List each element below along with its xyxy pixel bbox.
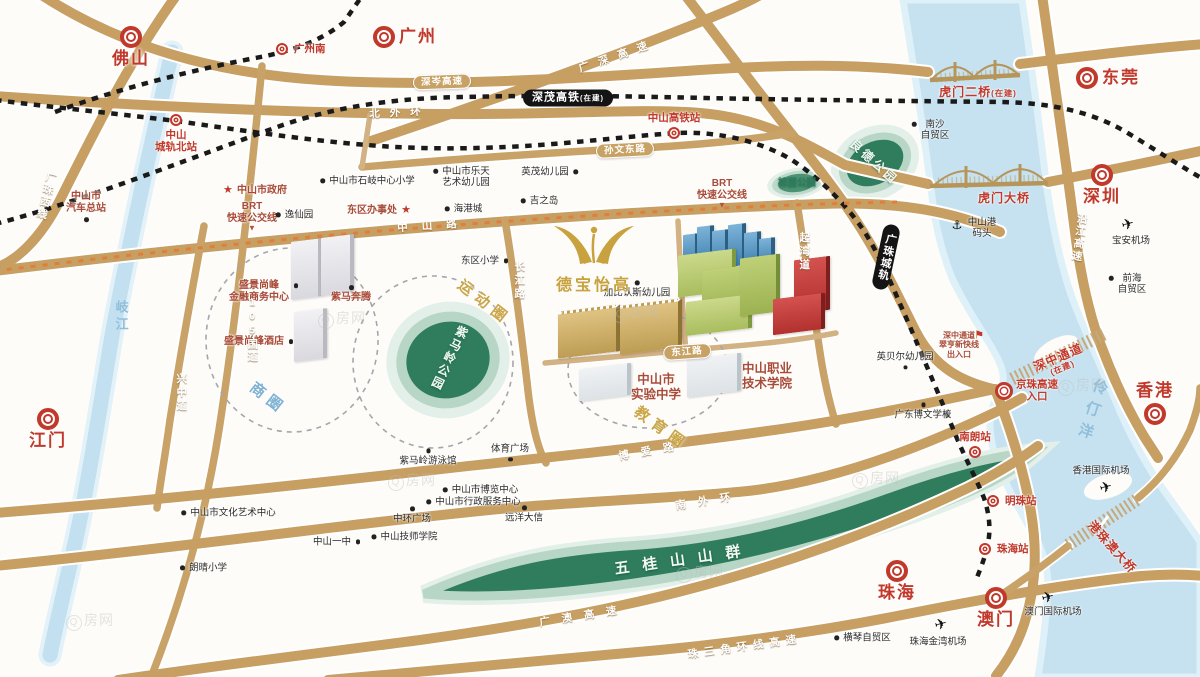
poi-polytechnic: 中山职业技术学院 xyxy=(742,361,792,391)
poi-macau-airport: 澳门国际机场 xyxy=(1024,606,1081,617)
water-lingdingyang: 伶仃洋 xyxy=(1072,376,1110,447)
road-guangshen-expwy: 广深高速 xyxy=(577,37,659,75)
road-nanwaihuan: 南外环 xyxy=(675,490,744,513)
road-guang-ao-expwy: 广澳高速 xyxy=(539,603,630,629)
zone-business: 商圈 xyxy=(246,379,290,419)
poi-city-hall: 中山市政府★ xyxy=(237,185,287,197)
plane-icon-baoan: ✈ xyxy=(1120,215,1137,235)
water-qijiang: 岐江 xyxy=(113,300,128,334)
poi-shengjing-center: 盛景尚峰金融商务中心 xyxy=(229,280,289,304)
watermark: Q房网 xyxy=(852,468,900,489)
wuguishan-mountains: 五桂山山群 xyxy=(613,541,754,578)
poi-shiqi-primary: 中山市石岐中心小学 xyxy=(329,175,415,186)
poi-langqing-primary: 朗晴小学 xyxy=(189,562,227,573)
poi-admin-service-center: 中山市行政服务中心 xyxy=(435,496,521,507)
watermark: Q房网 xyxy=(66,610,114,631)
plane-icon-macau: ✈ xyxy=(1040,588,1057,608)
bridge-shenzhong-label: 深中通道(在建) xyxy=(1031,341,1088,383)
poi-experimental-school: 中山市实验中学 xyxy=(631,372,681,402)
project-name: 德宝怡高 xyxy=(548,271,640,295)
park-zongyin: 棕茵公园 xyxy=(778,177,816,188)
watermark: Q房网 xyxy=(388,470,436,491)
poi-expo-center: 中山市博览中心 xyxy=(452,484,519,495)
poi-no1-middle-school: 中山一中 xyxy=(313,536,351,547)
flag-icon-shenzhong-entrance: ⚑ xyxy=(974,330,984,343)
poi-yuanyang-daxin: 远洋大信 xyxy=(505,512,543,523)
plane-icon-jinwan: ✈ xyxy=(933,615,950,635)
road-g105: 105国道 xyxy=(246,297,258,364)
road-beiwaihuan: 北外环 xyxy=(369,105,431,121)
labels-layer: 佛山广州东莞深圳香港江门珠海澳门广州南中山城轨北站中山高铁站南朗站明珠站珠海站京… xyxy=(0,0,1200,677)
road-changjianglu: 长江路 xyxy=(513,261,525,302)
brt-label-west: BRT快速公交线 xyxy=(227,201,277,225)
poi-zhonghuan-plaza: 中环广场 xyxy=(393,513,431,524)
road-zhongshanlu: 中山路 xyxy=(397,217,471,234)
poi-technician-college: 中山技师学院 xyxy=(380,531,437,542)
poi-bowen-school: 广东博文学校 xyxy=(894,409,951,420)
bridge-humen2-label: 虎门二桥(在建) xyxy=(939,85,1017,99)
poi-bus-terminal: 中山市汽车总站 xyxy=(66,191,106,215)
poi-hengqin-ftz: 横琴自贸区 xyxy=(843,632,891,643)
zone-sports: 运动圈 xyxy=(454,277,515,330)
poi-dongqu-primary: 东区小学 xyxy=(461,255,499,266)
road-guangzhu-west-line: 广珠西线 xyxy=(34,170,58,222)
park-liangde: 良德公园 xyxy=(847,137,901,188)
poi-qianhai-ftz: 前海自贸区 xyxy=(1118,273,1147,295)
poi-hk-airport: 香港国际机场 xyxy=(1072,465,1129,476)
road-qiwandao: 起湾道 xyxy=(798,232,810,273)
poi-sports-plaza: 体育广场 xyxy=(491,443,529,454)
poi-zimaling-natatorium: 紫马岭游泳馆 xyxy=(399,455,456,466)
poi-zima-benteng: 紫马奔腾 xyxy=(331,292,371,304)
road-shencen-expwy: 深岑高速 xyxy=(413,73,472,90)
bridge-hzmb-label: 港珠澳大桥 xyxy=(1085,518,1139,576)
road-dongjianglu: 东江路 xyxy=(663,343,711,361)
brt-label-east: BRT快速公交线 xyxy=(697,178,747,202)
poi-culture-art-center: 中山市文化艺术中心 xyxy=(190,507,276,518)
poi-zhongshan-port: 中山港码头 xyxy=(968,217,997,239)
road-sunwen-east: 孙文东路 xyxy=(596,141,655,159)
poi-yixian-garden: 逸仙园 xyxy=(285,209,314,220)
poi-nansha-ftz: 南沙自贸区 xyxy=(921,119,950,141)
plane-icon-hk: ✈ xyxy=(1098,478,1115,498)
poi-yingbeier-kindergarten: 英贝尔幼儿园 xyxy=(876,351,933,362)
shenzhong-entrance-note: 深中通道翠亨新快线出入口 xyxy=(939,331,979,359)
park-zimaling: 紫马岭公园 xyxy=(428,323,470,392)
poi-letian-kindergarten: 中山市乐天艺术幼儿园 xyxy=(442,166,490,188)
poi-baoan-airport: 宝安机场 xyxy=(1112,235,1150,246)
location-map: 佛山广州东莞深圳香港江门珠海澳门广州南中山城轨北站中山高铁站南朗站明珠站珠海站京… xyxy=(0,0,1200,677)
phoenix-logo-icon xyxy=(550,218,638,264)
project-logo: 德宝怡高 xyxy=(548,218,640,295)
watermark: Q房网 xyxy=(318,308,366,329)
rail-shenmao-hsr: 深茂高铁(在建) xyxy=(523,90,613,107)
brt-pointer-west: ▼ xyxy=(248,223,256,232)
watermark: Q房网 xyxy=(612,302,660,323)
poi-jinwan-airport: 珠海金湾机场 xyxy=(909,636,966,647)
brt-pointer-east: ▼ xyxy=(718,200,726,209)
poi-jusco: 吉之岛 xyxy=(530,195,559,206)
rail-guangzhu-icr: 广珠城轨 xyxy=(871,223,901,291)
road-yanjiang-expwy: 沿江高速 xyxy=(1069,212,1088,263)
poi-harbour-city: 海港城 xyxy=(454,203,483,214)
poi-dongqu-office: 东区办事处★ xyxy=(347,205,397,217)
road-xingzhongdao: 兴中道 xyxy=(175,373,187,414)
ship-icon-zhongshan-port: ⚓ xyxy=(952,218,963,232)
bridge-humen-label: 虎门大桥 xyxy=(978,191,1030,205)
road-prd-ring-expwy: 珠三角环线高速 xyxy=(687,633,803,661)
poi-yingmao-kindergarten: 英茂幼儿园 xyxy=(521,166,569,177)
